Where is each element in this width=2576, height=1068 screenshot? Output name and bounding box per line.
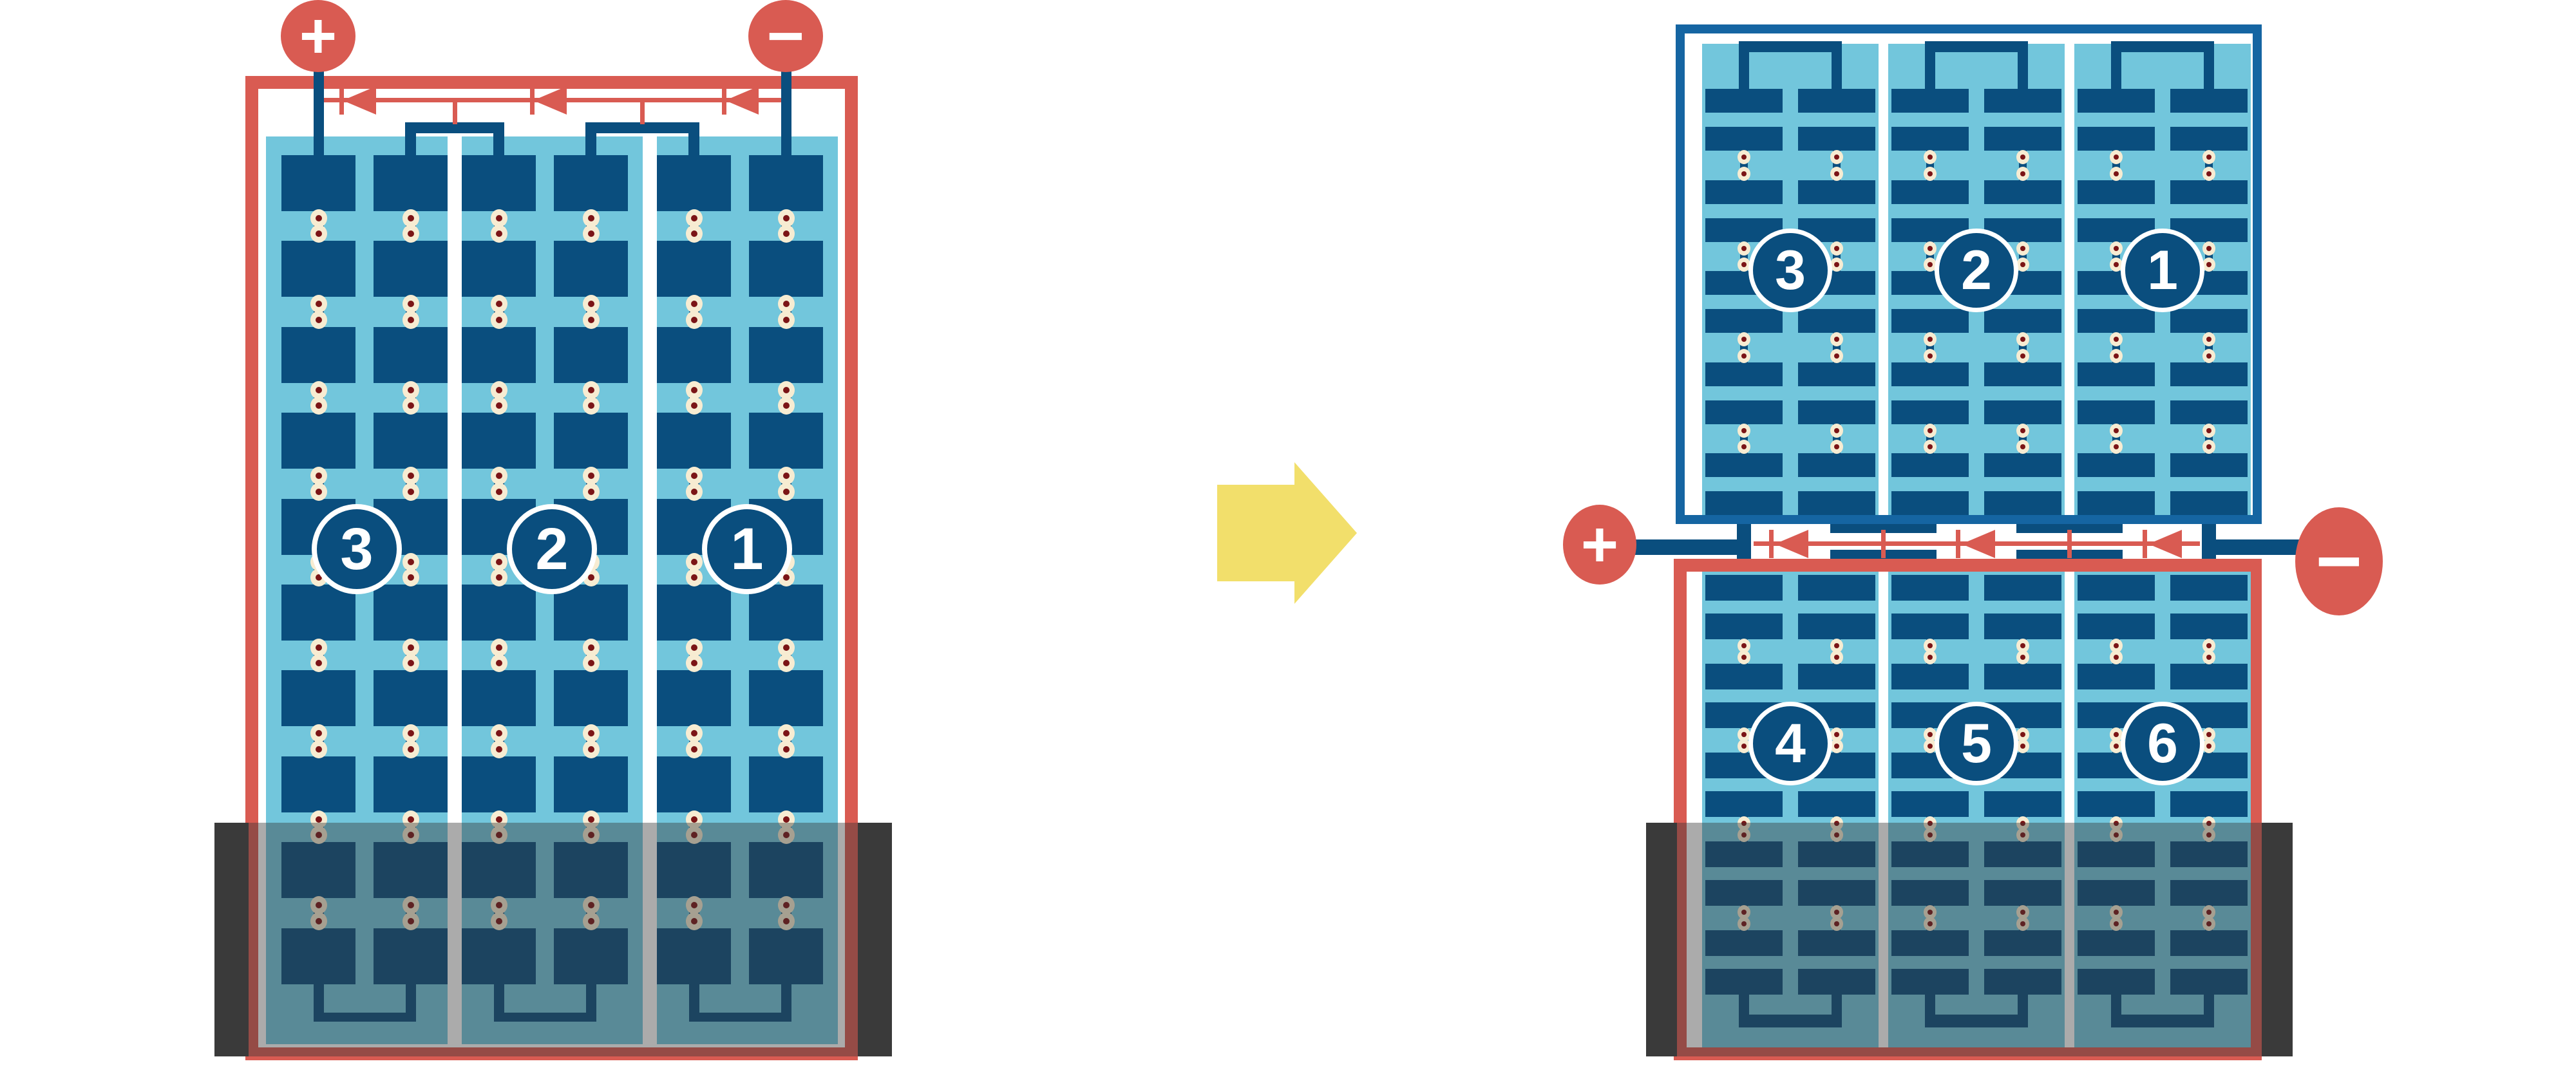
cell-plate bbox=[749, 155, 823, 211]
connector-dot-center bbox=[2206, 444, 2211, 449]
cell-plate bbox=[1891, 309, 1969, 333]
connector-dot-center bbox=[2206, 246, 2211, 251]
connector-dot-center bbox=[1834, 262, 1839, 267]
tray-panel bbox=[1646, 823, 2293, 1056]
cell-plate bbox=[462, 413, 536, 469]
cell-plate bbox=[1705, 614, 1783, 639]
connector-dot-center bbox=[691, 574, 697, 581]
positive-terminal-left: + bbox=[281, 0, 355, 72]
connector-dot-center bbox=[1927, 171, 1933, 176]
cell-plate bbox=[1891, 180, 1969, 204]
connector-dot-center bbox=[1741, 655, 1747, 660]
connector-dot-center bbox=[2114, 353, 2119, 359]
connector-dot-center bbox=[2114, 732, 2119, 737]
connector-dot-center bbox=[496, 317, 502, 323]
connector-dot-center bbox=[691, 489, 697, 495]
cell-plate bbox=[1705, 791, 1783, 817]
cell-plate bbox=[1891, 791, 1969, 817]
connector-dot-center bbox=[1927, 262, 1933, 267]
cell-plate bbox=[2170, 180, 2248, 204]
cell-plate bbox=[1798, 127, 1875, 151]
cell-plate bbox=[1984, 491, 2061, 515]
cell-plate bbox=[749, 413, 823, 469]
battery-diagram-scene: 3 2 1 + − 3 2 1 4 5 6 + − bbox=[0, 0, 2576, 1068]
cell-plate bbox=[657, 756, 731, 812]
cell-plate bbox=[2078, 453, 2155, 477]
cell-plate bbox=[554, 670, 628, 726]
connector-dot-center bbox=[691, 730, 697, 736]
connector-dot-center bbox=[1834, 444, 1839, 449]
cell-plate bbox=[462, 241, 536, 297]
connector-dot-center bbox=[316, 644, 322, 651]
cell-plate bbox=[1798, 664, 1875, 689]
cell-plate bbox=[554, 413, 628, 469]
connector-dot-center bbox=[316, 816, 322, 823]
connector-dot-center bbox=[408, 559, 414, 565]
connector-dot-center bbox=[408, 644, 414, 651]
cell-plate bbox=[462, 756, 536, 812]
connector-dot-center bbox=[496, 489, 502, 495]
connector-dot-center bbox=[2206, 262, 2211, 267]
connector-dot-center bbox=[2114, 444, 2119, 449]
connector-dot-center bbox=[316, 402, 322, 409]
current-arrowhead bbox=[343, 86, 376, 115]
connector-dot-center bbox=[691, 746, 697, 753]
cell-plate bbox=[1984, 362, 2061, 386]
positive-terminal-bar bbox=[1632, 539, 1751, 555]
connector-dot-center bbox=[316, 660, 322, 666]
current-tick bbox=[2067, 530, 2072, 558]
cell-plate bbox=[1984, 664, 2061, 689]
cell-plate bbox=[2170, 453, 2248, 477]
connector-dot-center bbox=[588, 215, 594, 221]
connector-dot-center bbox=[1927, 428, 1933, 433]
cell-plate bbox=[554, 585, 628, 641]
cell-plate bbox=[2078, 664, 2155, 689]
cell-plate bbox=[1891, 491, 1969, 515]
current-tick bbox=[1956, 530, 1960, 558]
tray-cap bbox=[214, 823, 249, 1056]
connector-dot-center bbox=[783, 215, 790, 221]
connector-dot-center bbox=[496, 215, 502, 221]
connector-dot-center bbox=[783, 644, 790, 651]
connector-dot-center bbox=[691, 559, 697, 565]
cell-plate bbox=[1798, 180, 1875, 204]
connector-dot-center bbox=[408, 387, 414, 393]
connector-dot-center bbox=[1741, 262, 1747, 267]
cell-plate bbox=[2170, 614, 2248, 639]
cell-plate bbox=[1984, 89, 2061, 113]
connector-dot-center bbox=[2114, 262, 2119, 267]
cell-plate bbox=[2170, 127, 2248, 151]
cell-plate bbox=[554, 756, 628, 812]
connector-dot-center bbox=[1927, 353, 1933, 359]
left-cell-number-badge: 1 bbox=[702, 504, 792, 594]
current-tick bbox=[1769, 530, 1774, 558]
connector-dot-center bbox=[2114, 643, 2119, 648]
connector-dot-center bbox=[1834, 744, 1839, 749]
cell-plate bbox=[2170, 791, 2248, 817]
connector-dot-center bbox=[1741, 353, 1747, 359]
transform-arrow-body bbox=[1217, 485, 1294, 581]
connector-dot-center bbox=[2206, 171, 2211, 176]
current-dropline bbox=[640, 100, 645, 124]
connector-dot-center bbox=[1834, 643, 1839, 648]
connector-dot-center bbox=[408, 816, 414, 823]
connector-dot-center bbox=[1834, 428, 1839, 433]
connector-dot-center bbox=[588, 489, 594, 495]
connector-dot-center bbox=[408, 215, 414, 221]
connector-dot-center bbox=[408, 402, 414, 409]
cell-plate bbox=[657, 155, 731, 211]
cell-plate bbox=[2170, 664, 2248, 689]
cell-plate bbox=[2170, 491, 2248, 515]
connector-dot-center bbox=[783, 489, 790, 495]
connector-dot-center bbox=[496, 559, 502, 565]
cell-plate bbox=[2170, 400, 2248, 424]
top-strap-leg bbox=[2111, 52, 2121, 89]
connector-dot-center bbox=[496, 387, 502, 393]
connector-dot-center bbox=[1927, 444, 1933, 449]
connector-dot-center bbox=[316, 301, 322, 307]
cell-plate bbox=[374, 756, 448, 812]
cell-plate bbox=[1705, 309, 1783, 333]
connector-dot-center bbox=[691, 660, 697, 666]
connector-dot-center bbox=[588, 317, 594, 323]
cell-plate bbox=[1798, 791, 1875, 817]
connector-dot-center bbox=[1927, 155, 1933, 160]
connector-dot-center bbox=[783, 746, 790, 753]
cell-plate bbox=[2170, 362, 2248, 386]
cell-plate bbox=[657, 670, 731, 726]
cell-plate bbox=[462, 327, 536, 383]
cell-plate bbox=[281, 241, 355, 297]
connector-dot-center bbox=[588, 473, 594, 479]
cell-plate bbox=[2078, 362, 2155, 386]
connector-dot-center bbox=[691, 230, 697, 237]
connector-dot-center bbox=[783, 402, 790, 409]
cell-plate bbox=[1891, 664, 1969, 689]
cell-plate bbox=[2078, 180, 2155, 204]
connector-dot-center bbox=[316, 215, 322, 221]
connector-dot-center bbox=[783, 387, 790, 393]
negative-terminal-left: − bbox=[748, 0, 823, 72]
connector-dot-center bbox=[2206, 155, 2211, 160]
cell-plate bbox=[749, 327, 823, 383]
connector-dot-center bbox=[496, 402, 502, 409]
current-arrowhead bbox=[2148, 530, 2182, 558]
connector-dot-center bbox=[691, 402, 697, 409]
negative-terminal-right: − bbox=[2295, 507, 2383, 615]
connector-dot-center bbox=[1834, 155, 1839, 160]
current-tick bbox=[1881, 530, 1886, 558]
connector-dot-center bbox=[316, 746, 322, 753]
cell-plate bbox=[281, 327, 355, 383]
cell-plate bbox=[749, 585, 823, 641]
cell-plate bbox=[281, 155, 355, 211]
right-partition-strip bbox=[2065, 44, 2074, 515]
cell-plate bbox=[2078, 614, 2155, 639]
connector-dot-center bbox=[408, 746, 414, 753]
cell-plate bbox=[2078, 127, 2155, 151]
current-dropline bbox=[453, 100, 457, 124]
connector-dot-center bbox=[783, 230, 790, 237]
connector-dot-center bbox=[1927, 655, 1933, 660]
connector-dot-center bbox=[2206, 643, 2211, 648]
cell-plate bbox=[2078, 309, 2155, 333]
connector-dot-center bbox=[496, 301, 502, 307]
connector-dot-center bbox=[588, 644, 594, 651]
connector-dot-center bbox=[2020, 337, 2025, 342]
cell-plate bbox=[374, 327, 448, 383]
connector-dot-center bbox=[1927, 246, 1933, 251]
connector-dot-center bbox=[2114, 744, 2119, 749]
connector-dot-center bbox=[496, 574, 502, 581]
connector-dot-center bbox=[2206, 655, 2211, 660]
connector-dot-center bbox=[691, 317, 697, 323]
cell-plate bbox=[462, 155, 536, 211]
connector-dot-center bbox=[783, 473, 790, 479]
connector-dot-center bbox=[1834, 337, 1839, 342]
cell-plate bbox=[1891, 89, 1969, 113]
right-bottom-cell-number-badge: 5 bbox=[1935, 702, 2018, 785]
cell-plate bbox=[1798, 89, 1875, 113]
connector-dot-center bbox=[2114, 655, 2119, 660]
cell-plate bbox=[281, 756, 355, 812]
connector-dot-center bbox=[588, 746, 594, 753]
top-strap-bar bbox=[2111, 41, 2214, 52]
connector-dot-center bbox=[2020, 732, 2025, 737]
cell-plate bbox=[1984, 614, 2061, 639]
connector-dot-center bbox=[408, 660, 414, 666]
cell-plate bbox=[749, 241, 823, 297]
connector-dot-center bbox=[496, 644, 502, 651]
connector-dot-center bbox=[2020, 353, 2025, 359]
cell-plate bbox=[1798, 453, 1875, 477]
connector-dot-center bbox=[496, 473, 502, 479]
right-top-cell-number-badge: 2 bbox=[1935, 229, 2018, 312]
connector-dot-center bbox=[588, 301, 594, 307]
connector-dot-center bbox=[408, 574, 414, 581]
connector-dot-center bbox=[496, 730, 502, 736]
cell-plate bbox=[374, 670, 448, 726]
connector-dot-center bbox=[408, 301, 414, 307]
top-strap-leg bbox=[1925, 52, 1935, 89]
connector-dot-center bbox=[1927, 744, 1933, 749]
cell-plate bbox=[374, 413, 448, 469]
cell-plate bbox=[281, 585, 355, 641]
cell-plate bbox=[1705, 400, 1783, 424]
cell-plate bbox=[749, 670, 823, 726]
cell-plate bbox=[2078, 575, 2155, 601]
cell-plate bbox=[462, 670, 536, 726]
connector-dot-center bbox=[2020, 744, 2025, 749]
right-top-cell-number-badge: 3 bbox=[1748, 229, 1832, 312]
connector-dot-center bbox=[2020, 444, 2025, 449]
cell-plate bbox=[1984, 309, 2061, 333]
intercell-bridge-leg bbox=[493, 133, 504, 158]
connector-dot-center bbox=[2020, 655, 2025, 660]
cell-plate bbox=[374, 155, 448, 211]
tray-panel bbox=[214, 823, 892, 1056]
connector-dot-center bbox=[496, 746, 502, 753]
connector-dot-center bbox=[2020, 428, 2025, 433]
cell-plate bbox=[1705, 453, 1783, 477]
connector-dot-center bbox=[691, 644, 697, 651]
connector-dot-center bbox=[316, 387, 322, 393]
connector-dot-center bbox=[783, 660, 790, 666]
connector-dot-center bbox=[316, 473, 322, 479]
cell-plate bbox=[657, 327, 731, 383]
connector-dot-center bbox=[1741, 171, 1747, 176]
connector-dot-center bbox=[2114, 428, 2119, 433]
cell-plate bbox=[1705, 127, 1783, 151]
connector-dot-center bbox=[1741, 155, 1747, 160]
connector-dot-center bbox=[1834, 732, 1839, 737]
intercell-bridge-leg bbox=[688, 133, 699, 158]
connector-dot-center bbox=[691, 301, 697, 307]
current-arrowhead bbox=[1962, 530, 1995, 558]
cell-plate bbox=[462, 585, 536, 641]
connector-dot-center bbox=[1741, 246, 1747, 251]
top-strap-leg bbox=[1739, 52, 1749, 89]
connector-dot-center bbox=[2114, 337, 2119, 342]
connector-dot-center bbox=[691, 215, 697, 221]
cell-plate bbox=[1798, 614, 1875, 639]
cell-plate bbox=[1891, 575, 1969, 601]
cell-plate bbox=[1705, 491, 1783, 515]
top-strap-leg bbox=[2018, 52, 2028, 89]
cell-plate bbox=[554, 327, 628, 383]
connector-dot-center bbox=[2020, 262, 2025, 267]
connector-dot-center bbox=[1834, 171, 1839, 176]
left-cell-number-badge: 2 bbox=[507, 504, 597, 594]
connector-dot-center bbox=[1741, 444, 1747, 449]
connector-dot-center bbox=[496, 230, 502, 237]
connector-dot-center bbox=[2020, 171, 2025, 176]
connector-dot-center bbox=[783, 730, 790, 736]
cell-plate bbox=[657, 585, 731, 641]
cell-plate bbox=[1798, 491, 1875, 515]
top-strap-leg bbox=[1832, 52, 1842, 89]
cell-plate bbox=[1798, 400, 1875, 424]
cell-plate bbox=[2170, 309, 2248, 333]
transform-arrow-head bbox=[1294, 462, 1357, 604]
connector-dot-center bbox=[2206, 744, 2211, 749]
cell-plate bbox=[1891, 400, 1969, 424]
connector-dot-center bbox=[408, 473, 414, 479]
cell-plate bbox=[749, 756, 823, 812]
cell-plate bbox=[1891, 127, 1969, 151]
top-strap-bar bbox=[1925, 41, 2028, 52]
connector-dot-center bbox=[496, 660, 502, 666]
cell-plate bbox=[374, 585, 448, 641]
cell-plate bbox=[281, 413, 355, 469]
cell-plate bbox=[1984, 400, 2061, 424]
cell-plate bbox=[1984, 180, 2061, 204]
current-arrowhead bbox=[533, 86, 567, 115]
connector-dot-center bbox=[783, 317, 790, 323]
connector-dot-center bbox=[588, 387, 594, 393]
intercell-bridge-leg bbox=[405, 133, 416, 158]
positive-terminal-post bbox=[314, 64, 324, 158]
cell-plate bbox=[657, 241, 731, 297]
left-cell-number-badge: 3 bbox=[312, 504, 402, 594]
connector-dot-center bbox=[316, 230, 322, 237]
cell-plate bbox=[2078, 400, 2155, 424]
connector-dot-center bbox=[691, 473, 697, 479]
connector-dot-center bbox=[2206, 732, 2211, 737]
connector-dot-center bbox=[783, 816, 790, 823]
cell-plate bbox=[2170, 89, 2248, 113]
cell-plate bbox=[1705, 664, 1783, 689]
cell-plate bbox=[1891, 453, 1969, 477]
connector-dot-center bbox=[783, 301, 790, 307]
top-strap-bar bbox=[1739, 41, 1842, 52]
connector-dot-center bbox=[2206, 428, 2211, 433]
connector-dot-center bbox=[2114, 155, 2119, 160]
connector-dot-center bbox=[316, 489, 322, 495]
cell-plate bbox=[1705, 89, 1783, 113]
connector-dot-center bbox=[588, 660, 594, 666]
right-bottom-cell-number-badge: 4 bbox=[1748, 702, 1832, 785]
cell-plate bbox=[657, 413, 731, 469]
connector-dot-center bbox=[588, 230, 594, 237]
cell-plate bbox=[1891, 362, 1969, 386]
connector-dot-center bbox=[1741, 744, 1747, 749]
cell-plate bbox=[1984, 791, 2061, 817]
cell-plate bbox=[1705, 575, 1783, 601]
connector-dot-center bbox=[408, 489, 414, 495]
cell-plate bbox=[1705, 362, 1783, 386]
current-arrowhead bbox=[725, 86, 759, 115]
tray-cap bbox=[1646, 823, 1677, 1056]
connector-dot-center bbox=[2206, 337, 2211, 342]
cell-plate bbox=[1984, 453, 2061, 477]
connector-dot-center bbox=[2114, 246, 2119, 251]
cell-plate bbox=[1705, 180, 1783, 204]
cell-plate bbox=[2078, 491, 2155, 515]
connector-dot-center bbox=[2020, 246, 2025, 251]
tray-cap bbox=[2262, 823, 2293, 1056]
cell-plate bbox=[2170, 575, 2248, 601]
current-tick bbox=[2143, 530, 2147, 558]
cell-plate bbox=[281, 670, 355, 726]
current-arrowhead bbox=[1775, 530, 1808, 558]
cell-plate bbox=[1891, 614, 1969, 639]
cell-plate bbox=[374, 241, 448, 297]
connector-dot-center bbox=[588, 816, 594, 823]
cell-plate bbox=[554, 241, 628, 297]
connector-dot-center bbox=[496, 816, 502, 823]
tray-cap bbox=[858, 823, 892, 1056]
connector-dot-center bbox=[1741, 643, 1747, 648]
cell-plate bbox=[1984, 575, 2061, 601]
connector-dot-center bbox=[1741, 337, 1747, 342]
connector-dot-center bbox=[316, 317, 322, 323]
connector-dot-center bbox=[1927, 643, 1933, 648]
connector-dot-center bbox=[588, 730, 594, 736]
connector-dot-center bbox=[1834, 353, 1839, 359]
intercell-bridge-leg bbox=[585, 133, 596, 158]
connector-dot-center bbox=[408, 230, 414, 237]
connector-dot-center bbox=[316, 730, 322, 736]
cell-plate bbox=[554, 155, 628, 211]
connector-dot-center bbox=[2114, 171, 2119, 176]
connector-dot-center bbox=[408, 317, 414, 323]
cell-plate bbox=[2078, 791, 2155, 817]
cell-plate bbox=[1798, 575, 1875, 601]
